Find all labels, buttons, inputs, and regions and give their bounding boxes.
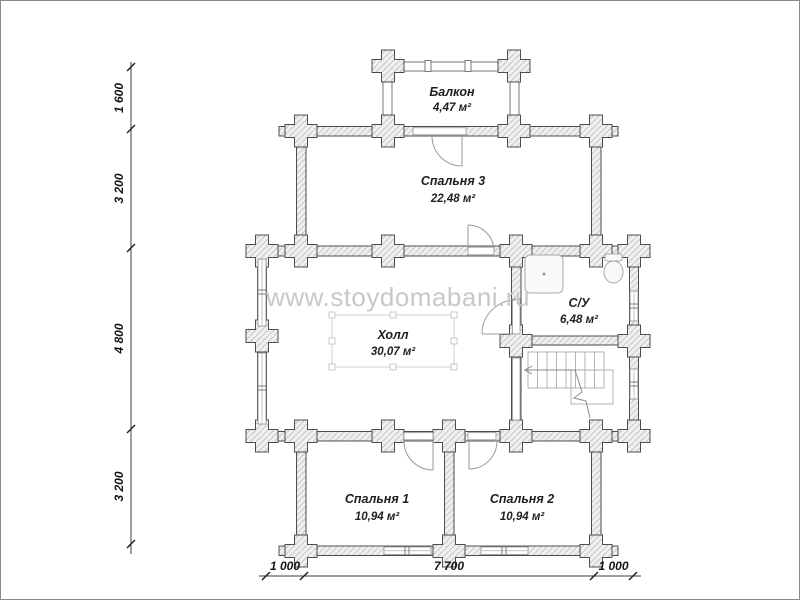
room-name-bedroom1: Спальня 1 (345, 492, 409, 506)
bedroom2-door (469, 441, 497, 469)
bathroom-fixtures (525, 254, 623, 293)
room-name-hall: Холл (376, 328, 408, 342)
dimension-left: 1 600 3 200 4 800 3 200 (112, 62, 135, 554)
dim-bottom-2: 7 700 (434, 559, 464, 573)
balcony-post (465, 61, 471, 72)
room-area-bathroom: 6,48 м² (560, 314, 599, 326)
bedroom1-door-opening (404, 433, 433, 440)
dimension-bottom: 1 000 7 700 1 000 (259, 559, 641, 580)
shower (525, 255, 563, 293)
room-name-balcony: Балкон (429, 85, 475, 99)
floor-plan-page: www.stoydomabani.ru Балкон 4,47 м² Спаль… (0, 0, 800, 600)
dim-left-1: 1 600 (112, 83, 126, 113)
staircase (524, 352, 613, 418)
window (384, 547, 431, 555)
bedroom3-door-opening (468, 247, 494, 255)
watermark-text: www.stoydomabani.ru (265, 282, 530, 312)
room-area-bedroom2: 10,94 м² (500, 511, 545, 523)
window (481, 547, 528, 555)
dim-left-2: 3 200 (112, 173, 126, 203)
dim-left-3: 4 800 (112, 323, 126, 354)
room-name-bedroom2: Спальня 2 (490, 492, 554, 506)
room-name-bathroom: С/У (569, 296, 592, 310)
room-area-bedroom1: 10,94 м² (355, 511, 400, 523)
balcony-door (432, 136, 462, 166)
window (258, 259, 266, 326)
stair-direction-arrow (525, 366, 590, 418)
room-name-bedroom3: Спальня 3 (421, 174, 485, 188)
window (258, 353, 266, 424)
floor-plan-drawing: www.stoydomabani.ru Балкон 4,47 м² Спаль… (1, 1, 800, 600)
balcony-post (425, 61, 431, 72)
room-area-hall: 30,07 м² (371, 346, 416, 358)
dim-left-4: 3 200 (112, 471, 126, 501)
room-area-bedroom3: 22,48 м² (430, 193, 476, 205)
toilet (604, 254, 623, 283)
room-area-balcony: 4,47 м² (432, 102, 472, 114)
bedroom2-door-opening (468, 433, 496, 440)
window (630, 369, 638, 399)
dim-bottom-1: 1 000 (270, 559, 300, 573)
bedroom1-door (404, 441, 433, 470)
balcony-door-opening (413, 128, 466, 135)
stairs-opening (513, 358, 521, 420)
window (630, 291, 638, 321)
dim-bottom-3: 1 000 (598, 559, 628, 573)
